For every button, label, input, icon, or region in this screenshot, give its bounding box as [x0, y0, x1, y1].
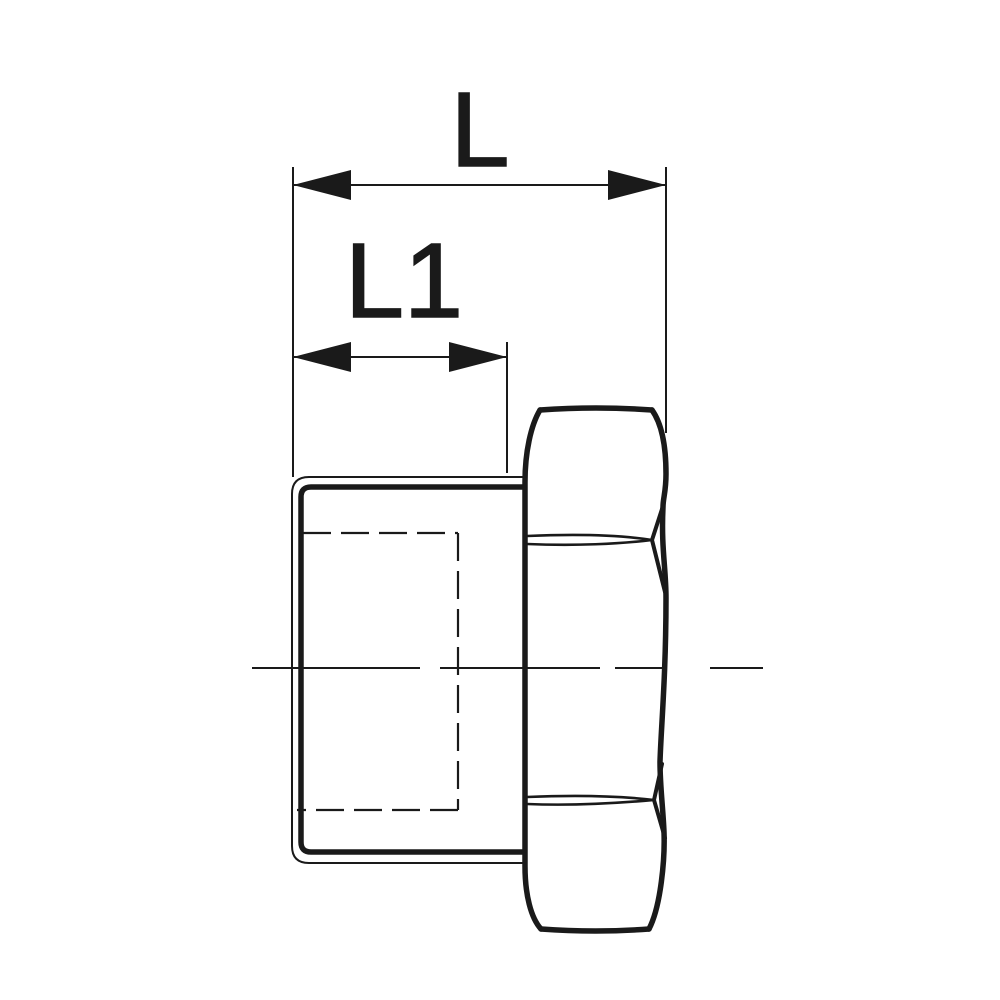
- hex-upper-facet-line: [527, 540, 652, 545]
- hex-upper-facet-line: [527, 535, 652, 540]
- hex-bottom-edge: [541, 929, 649, 931]
- arrowhead-left-icon: [293, 170, 351, 200]
- arrowhead-right-icon: [449, 342, 507, 372]
- hex-lower-facet-line: [527, 796, 654, 800]
- technical-drawing-canvas: L L1: [0, 0, 1000, 1000]
- hex-lower-facet-line: [527, 800, 654, 805]
- hex-head: [525, 408, 666, 931]
- arrowhead-left-icon: [293, 342, 351, 372]
- threaded-body: [292, 477, 525, 863]
- hex-top-edge: [540, 408, 652, 410]
- hex-fitting-dimension-drawing: L L1: [0, 0, 1000, 1000]
- dimension-L1: L1: [293, 222, 507, 473]
- hex-right-edge: [649, 410, 666, 929]
- dimension-label-L: L: [451, 71, 510, 189]
- hex-left-edge: [525, 410, 541, 929]
- body-outline: [301, 487, 523, 852]
- dimension-label-L1: L1: [345, 222, 463, 340]
- thread-crest-outline: [292, 477, 525, 863]
- arrowhead-right-icon: [608, 170, 666, 200]
